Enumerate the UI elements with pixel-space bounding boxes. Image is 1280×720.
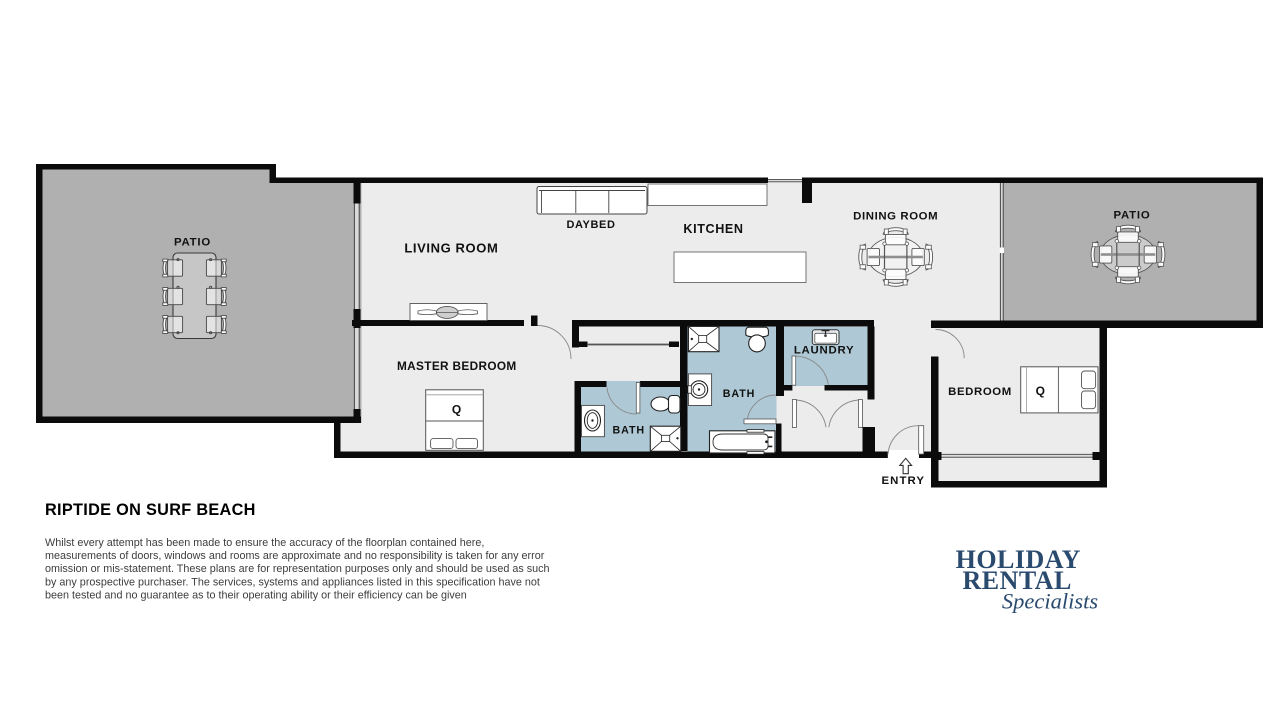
svg-text:by any prospective purchaser.: by any prospective purchaser. The servic… xyxy=(45,576,540,588)
svg-text:DAYBED: DAYBED xyxy=(566,219,615,231)
svg-text:BATH: BATH xyxy=(613,424,646,436)
svg-text:MASTER BEDROOM: MASTER BEDROOM xyxy=(397,359,517,373)
svg-text:BEDROOM: BEDROOM xyxy=(948,386,1012,398)
svg-text:LIVING ROOM: LIVING ROOM xyxy=(404,240,498,255)
svg-text:KITCHEN: KITCHEN xyxy=(683,222,743,236)
svg-text:DINING ROOM: DINING ROOM xyxy=(853,211,938,223)
svg-text:Specialists: Specialists xyxy=(1002,589,1098,614)
svg-text:Whilst every attempt has been: Whilst every attempt has been made to en… xyxy=(45,537,484,549)
svg-text:Q: Q xyxy=(1036,384,1046,398)
svg-text:been tested and no guarantee a: been tested and no guarantee as to their… xyxy=(45,590,467,602)
svg-text:Q: Q xyxy=(452,402,462,416)
svg-text:omission or mis-statement. The: omission or mis-statement. These plans a… xyxy=(45,563,550,575)
svg-text:PATIO: PATIO xyxy=(174,236,211,248)
svg-text:ENTRY: ENTRY xyxy=(881,475,925,487)
svg-text:LAUNDRY: LAUNDRY xyxy=(794,344,855,356)
svg-text:measurements of doors, windows: measurements of doors, windows and rooms… xyxy=(45,550,545,562)
svg-text:BATH: BATH xyxy=(723,388,756,400)
svg-text:PATIO: PATIO xyxy=(1113,210,1150,222)
svg-text:RIPTIDE ON SURF BEACH: RIPTIDE ON SURF BEACH xyxy=(45,501,256,519)
